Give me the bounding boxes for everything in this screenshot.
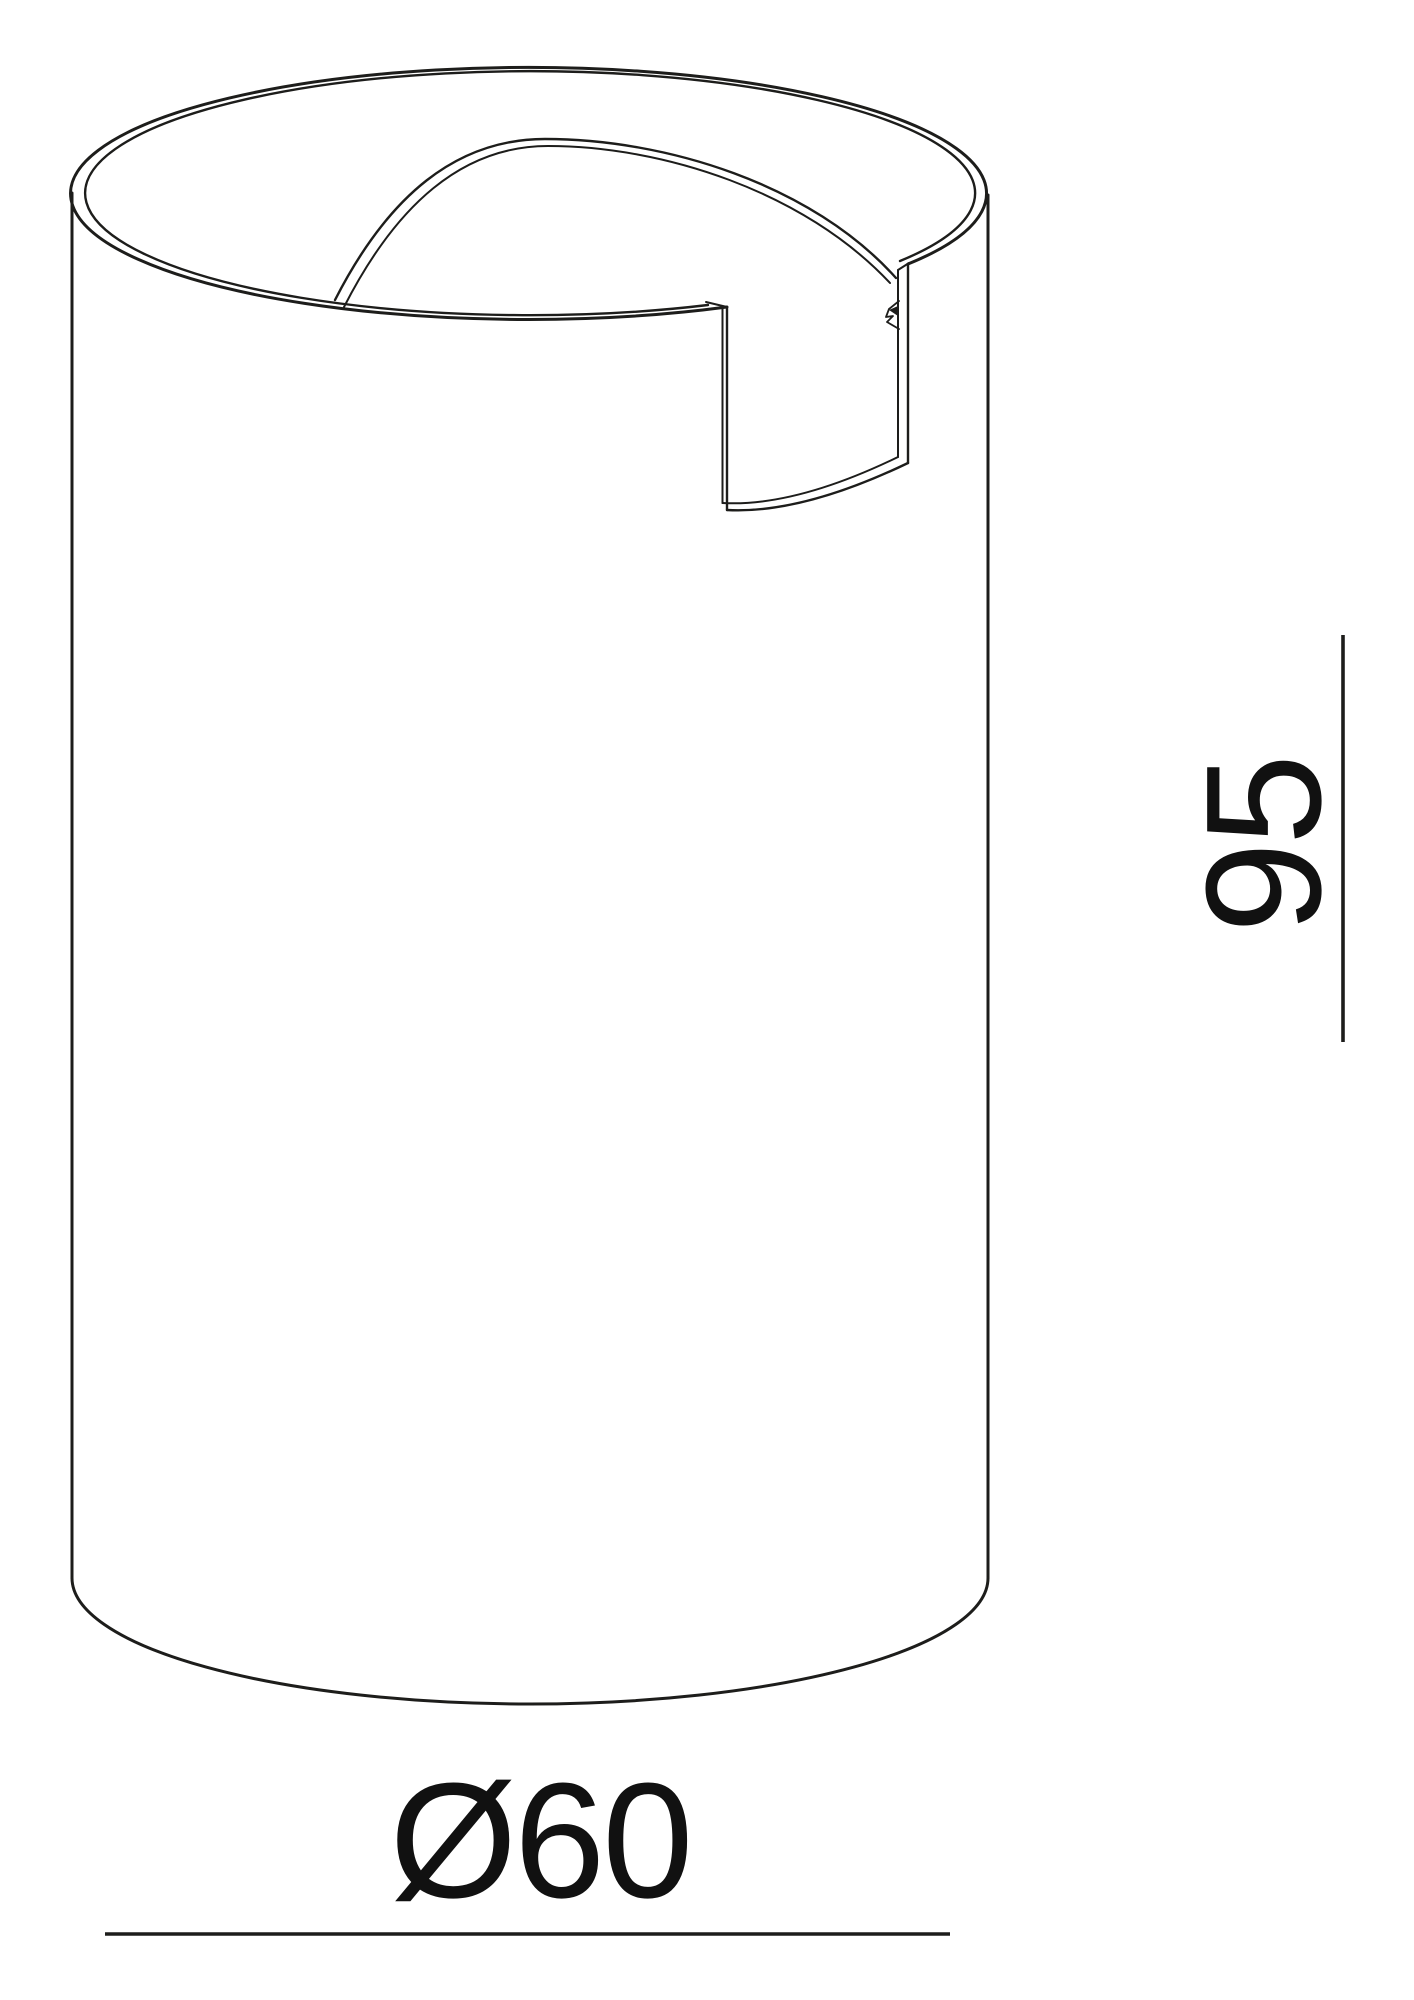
cylinder-technical-drawing: 95 Ø60 xyxy=(0,0,1414,2000)
top-inner-rim-ellipse xyxy=(85,71,975,315)
top-outer-rim-ellipse xyxy=(71,67,987,319)
cylinder-body xyxy=(71,67,988,1704)
bottom-edge-arc xyxy=(72,1578,988,1704)
technical-drawing-page: 95 Ø60 xyxy=(0,0,1414,2000)
inner-wall-horizon-lower xyxy=(344,146,890,307)
rim-notch-cutout xyxy=(706,263,909,510)
diameter-dimension-label: Ø60 xyxy=(390,1749,691,1932)
height-dimension: 95 xyxy=(1172,635,1355,1042)
notch-left-cut-top-face xyxy=(706,302,727,307)
height-dimension-label: 95 xyxy=(1172,757,1355,933)
diameter-dimension: Ø60 xyxy=(105,1749,950,1934)
